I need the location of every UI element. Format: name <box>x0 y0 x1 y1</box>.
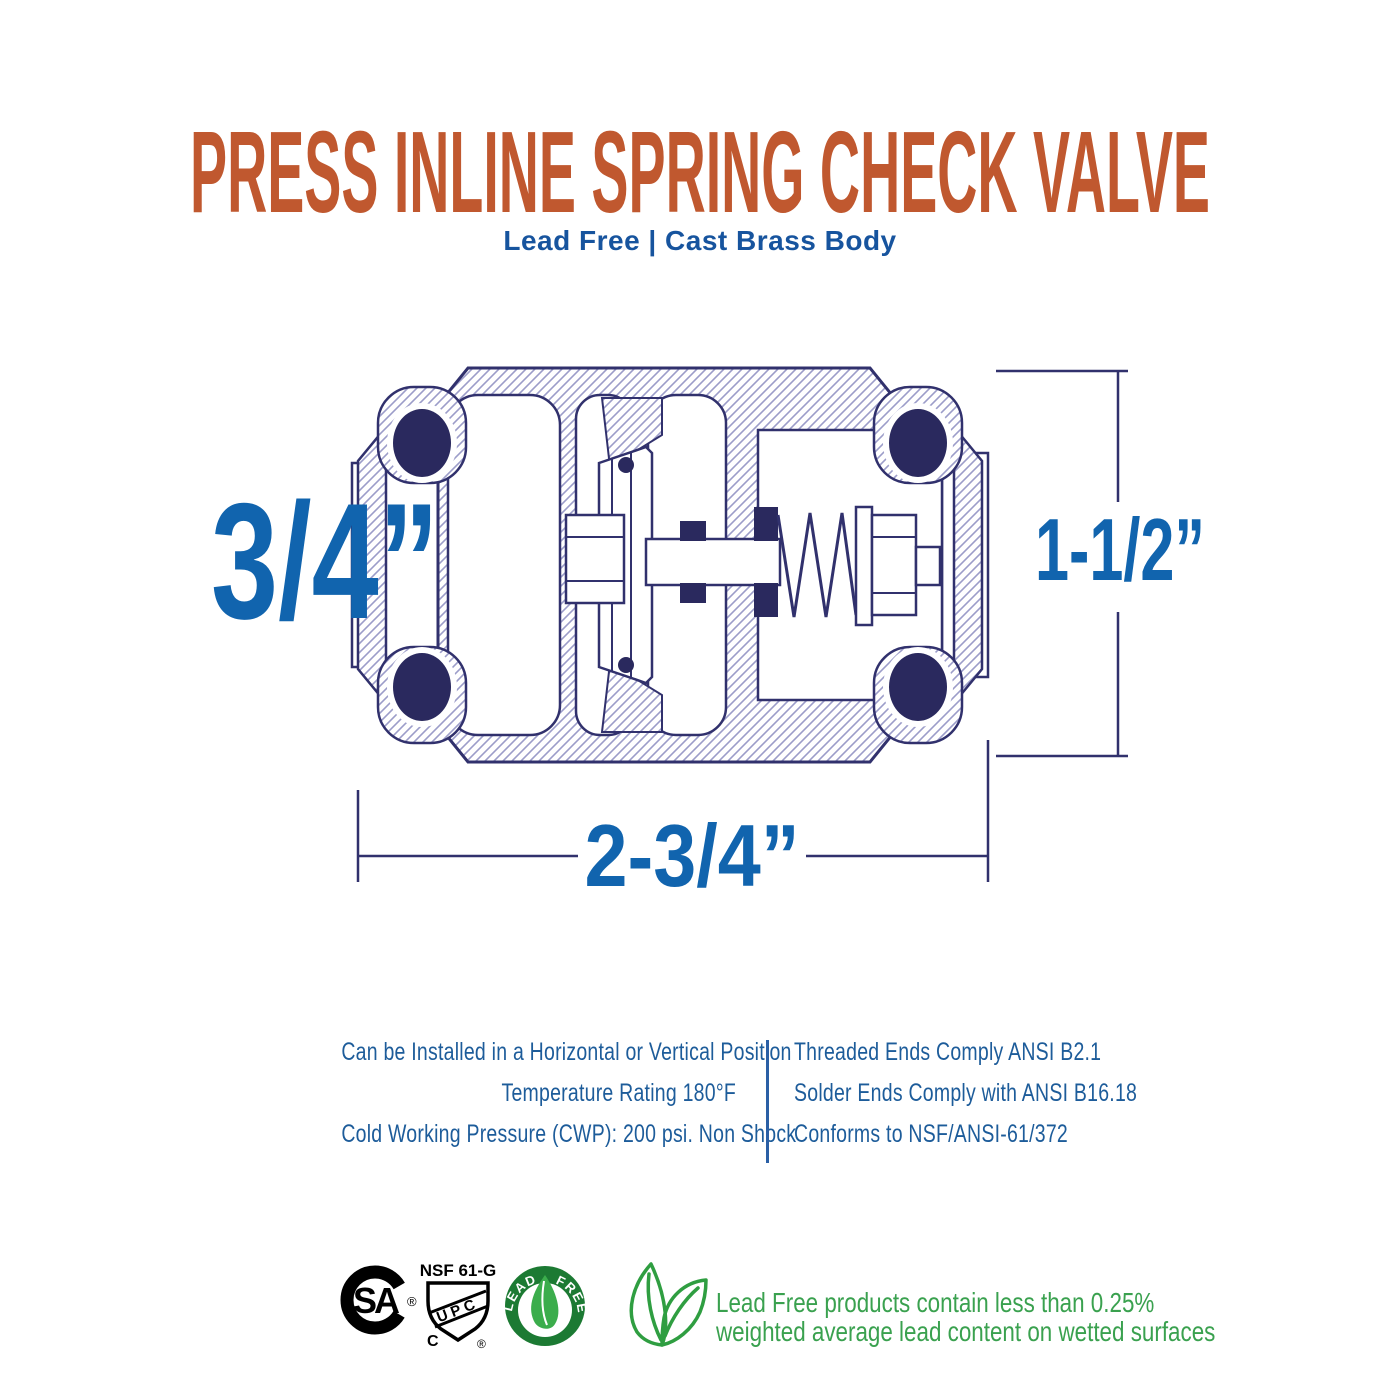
spec-line: Threaded Ends Comply ANSI B2.1 <box>794 1032 1231 1073</box>
valve-stem <box>646 539 780 585</box>
lead-free-note-line1: Lead Free products contain less than 0.2… <box>716 1288 1215 1317</box>
spec-line: Conforms to NSF/ANSI-61/372 <box>794 1114 1231 1155</box>
csa-icon: SA ® <box>332 1258 422 1348</box>
spec-divider <box>766 1040 769 1163</box>
hex-nut-left <box>566 515 624 603</box>
disc-seal-bottom <box>618 657 634 673</box>
dimension-length-label: 2-3/4” <box>585 806 800 905</box>
lead-free-note-line2: weighted average lead content on wetted … <box>716 1317 1215 1346</box>
spec-line: Cold Working Pressure (CWP): 200 psi. No… <box>341 1114 736 1155</box>
leaf-icon <box>618 1256 718 1356</box>
svg-text:®: ® <box>477 1337 486 1351</box>
o-ring-top-left <box>393 409 451 477</box>
spec-line: Solder Ends Comply with ANSI B16.18 <box>794 1073 1231 1114</box>
o-ring-top-right <box>889 409 947 477</box>
lead-free-note: Lead Free products contain less than 0.2… <box>716 1288 1215 1346</box>
o-ring-bottom-right <box>889 653 947 721</box>
lead-free-badge-icon: LEAD FREE <box>504 1265 586 1347</box>
spec-column-right: Threaded Ends Comply ANSI B2.1 Solder En… <box>794 1032 1231 1155</box>
spec-column-left: Can be Installed in a Horizontal or Vert… <box>341 1032 736 1155</box>
product-spec-sheet: PRESS INLINE SPRING CHECK VALVE Lead Fre… <box>0 0 1400 1400</box>
page-subtitle: Lead Free | Cast Brass Body <box>503 225 896 256</box>
svg-text:SA: SA <box>353 1280 400 1321</box>
disc-seal-top <box>618 457 634 473</box>
valve-diagram-canvas: PRESS INLINE SPRING CHECK VALVE Lead Fre… <box>0 0 1400 1000</box>
spec-line: Temperature Rating 180°F <box>341 1073 736 1114</box>
o-ring-bottom-left <box>393 653 451 721</box>
svg-text:NSF 61-G: NSF 61-G <box>420 1261 497 1280</box>
dimension-inlet-label: 3/4” <box>211 469 439 653</box>
hex-nut-right <box>872 515 916 615</box>
dimension-height-label: 1-1/2” <box>1035 500 1205 599</box>
upc-shield-icon: NSF 61-G UPC C ® <box>413 1256 503 1351</box>
valve-cross-section-diagram <box>352 368 988 762</box>
spec-line: Can be Installed in a Horizontal or Vert… <box>341 1032 736 1073</box>
svg-text:C: C <box>427 1333 439 1350</box>
page-title: PRESS INLINE SPRING CHECK VALVE <box>190 107 1210 237</box>
